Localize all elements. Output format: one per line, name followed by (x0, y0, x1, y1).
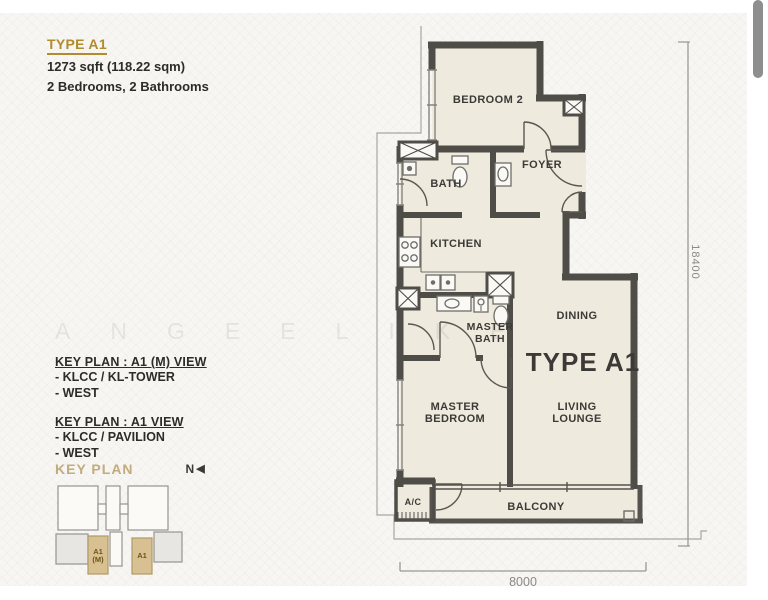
dimension-width: 8000 (509, 575, 537, 589)
keyplan-notes: KEY PLAN : A1 (M) VIEW - KLCC / KL-TOWER… (55, 355, 207, 474)
page: TYPE A1 1273 sqft (118.22 sqm) 2 Bedroom… (0, 0, 768, 600)
north-label: N (186, 462, 195, 476)
stove (399, 237, 420, 267)
keyplan-note-item: - WEST (55, 445, 207, 461)
label-foyer: FOYER (522, 159, 562, 171)
north-indicator: N ◀ (186, 462, 205, 476)
unit-type-title: TYPE A1 (47, 36, 107, 55)
keyplan-note-title: KEY PLAN : A1 VIEW (55, 415, 207, 429)
dimension-height: 18400 (689, 244, 701, 280)
keyplan-map-title: KEY PLAN (55, 461, 134, 477)
toilet-tank (493, 296, 509, 304)
masterbath-vanity (437, 296, 471, 311)
keyplan-note-a1: KEY PLAN : A1 VIEW - KLCC / PAVILION - W… (55, 415, 207, 462)
keyplan-note-item: - KLCC / PAVILION (55, 429, 207, 445)
keyplan-note-title: KEY PLAN : A1 (M) VIEW (55, 355, 207, 369)
watermark-text: ANGEELIKE (55, 318, 545, 344)
label-master-bedroom: BEDROOM (425, 413, 485, 425)
label-living-lounge: LIVING (557, 401, 596, 413)
unit-info-block: TYPE A1 1273 sqft (118.22 sqm) 2 Bedroom… (47, 36, 209, 95)
keyplan-note-item: - WEST (55, 385, 207, 401)
label-bedroom2: BEDROOM 2 (453, 94, 523, 106)
keyplan-header: KEY PLAN N ◀ (55, 461, 205, 477)
unit-area: 1273 sqft (118.22 sqm) (47, 58, 209, 75)
toilet-tank (452, 156, 468, 164)
keyplan-note-a1m: KEY PLAN : A1 (M) VIEW - KLCC / KL-TOWER… (55, 355, 207, 402)
label-ac: A/C (405, 497, 422, 507)
label-balcony: BALCONY (507, 501, 564, 513)
label-bath: BATH (430, 178, 461, 190)
label-kitchen: KITCHEN (430, 238, 482, 250)
north-arrow-icon: ◀ (196, 464, 204, 475)
scrollbar-thumb[interactable] (753, 0, 763, 78)
keyplan-note-item: - KLCC / KL-TOWER (55, 369, 207, 385)
label-master-bedroom: MASTER (431, 401, 480, 413)
label-dining: DINING (557, 310, 598, 322)
unit-rooms: 2 Bedrooms, 2 Bathrooms (47, 78, 209, 95)
label-unit-type: TYPE A1 (526, 347, 640, 377)
label-living-lounge: LOUNGE (552, 413, 601, 425)
